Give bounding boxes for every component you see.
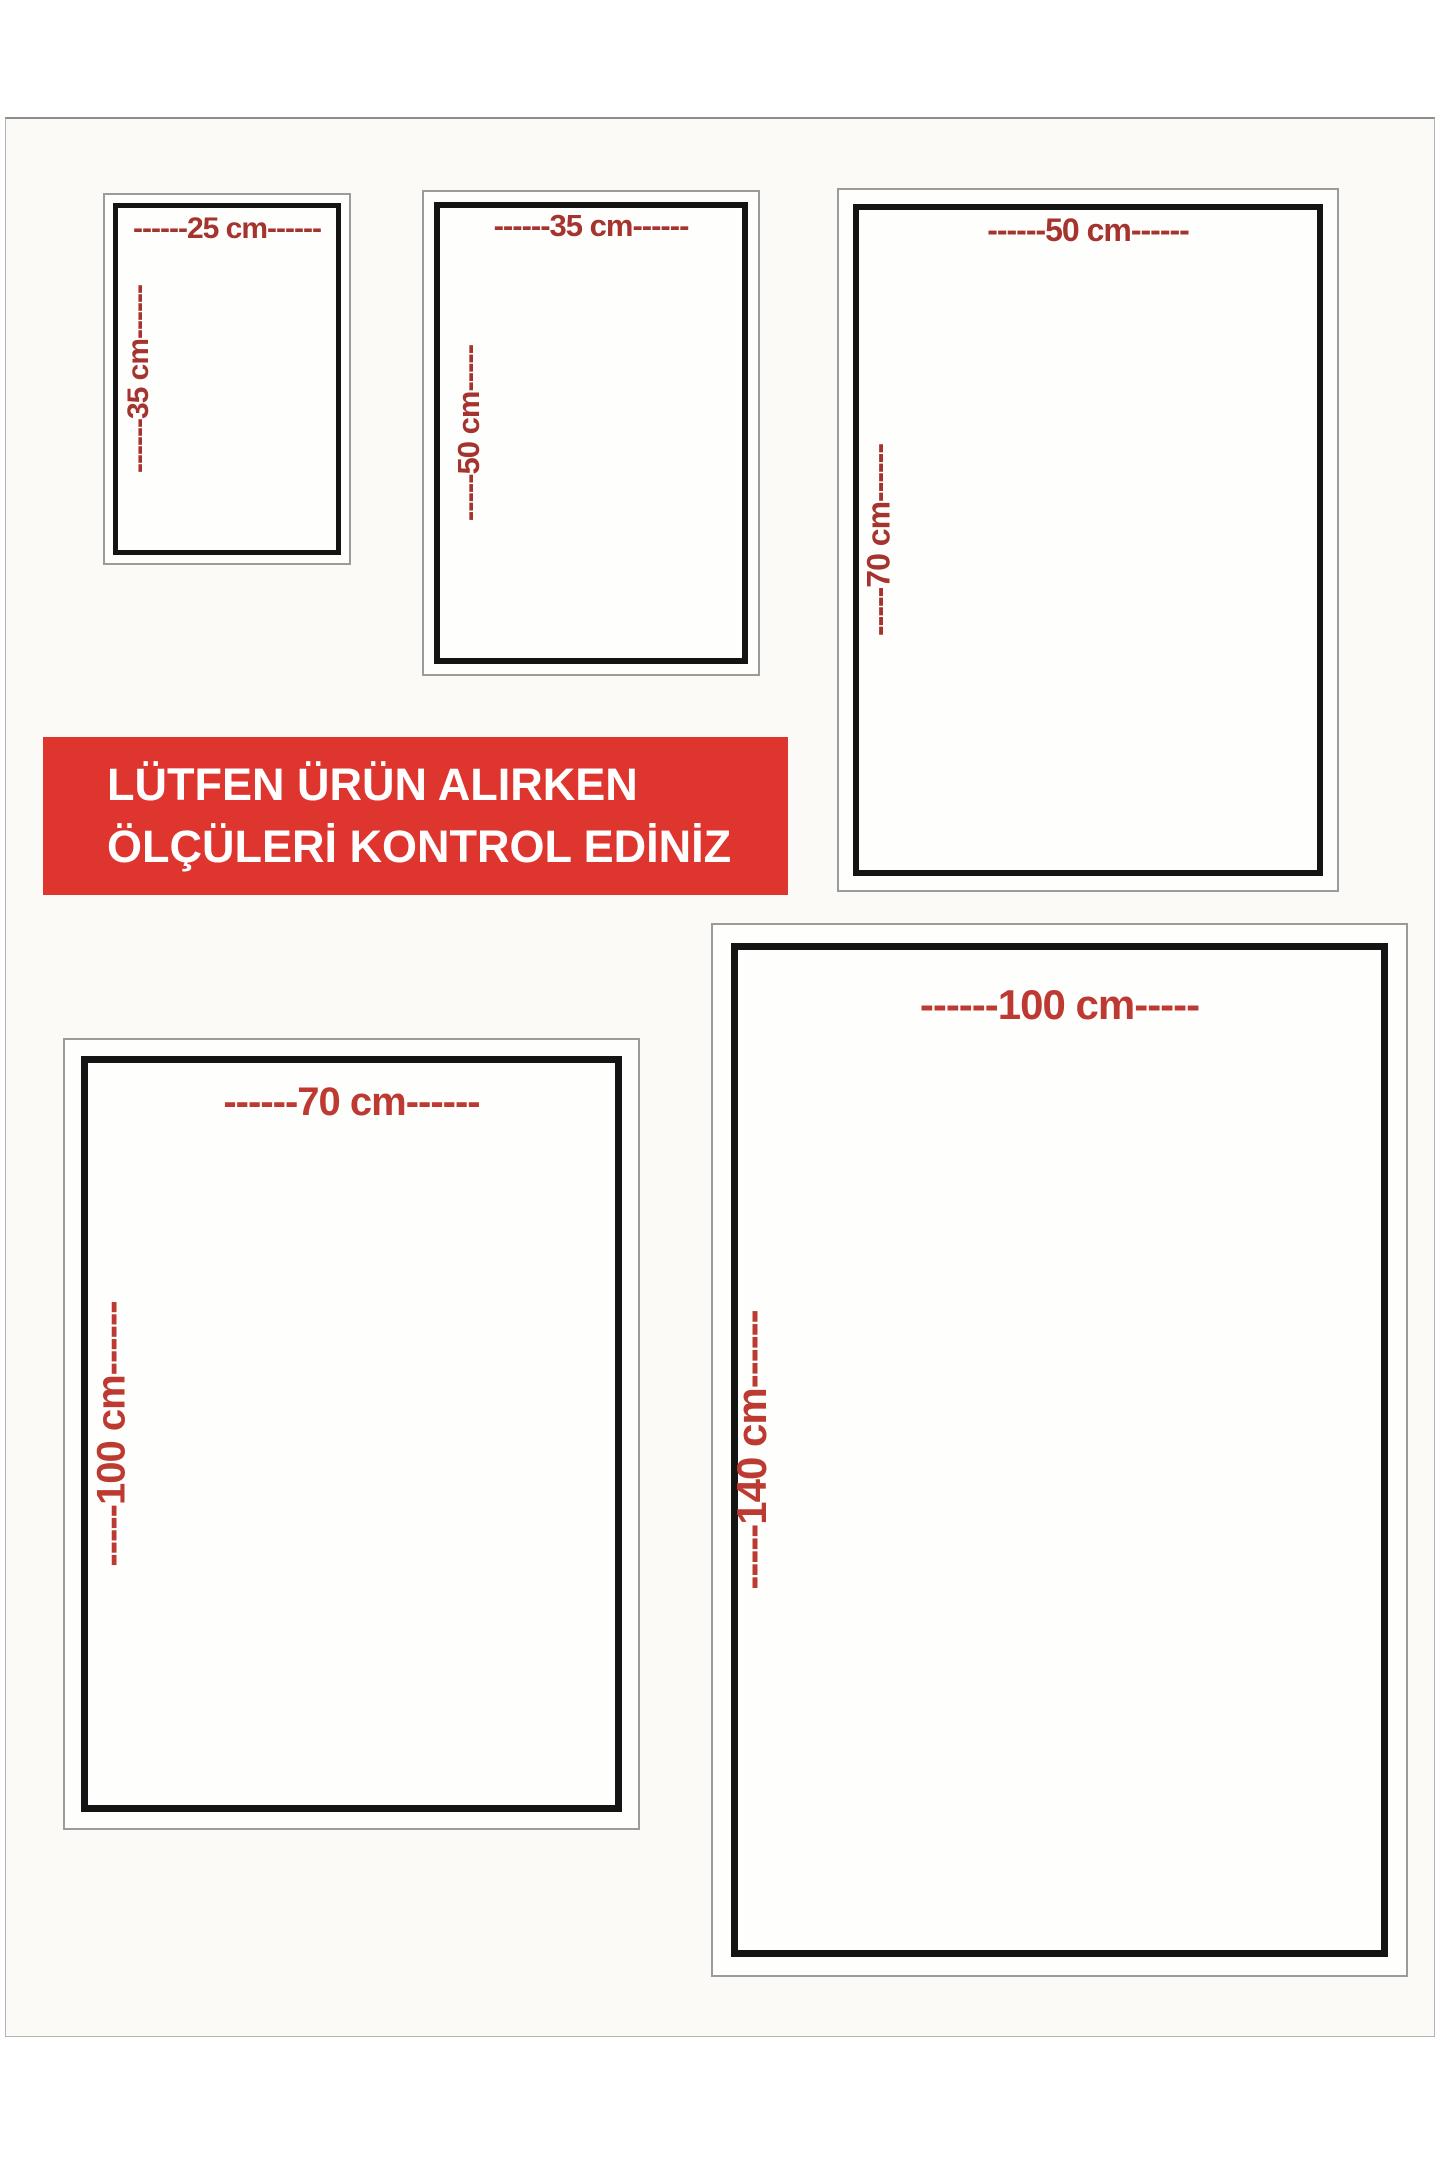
warning-banner: LÜTFEN ÜRÜN ALIRKEN ÖLÇÜLERİ KONTROL EDİ… bbox=[43, 737, 788, 895]
size-box-25x35: ------25 cm------ ------35 cm------ bbox=[103, 193, 351, 565]
warning-banner-line-2: ÖLÇÜLERİ KONTROL EDİNİZ bbox=[107, 816, 788, 878]
size-box-35x50: ------35 cm------ -----50 cm----- bbox=[422, 190, 760, 676]
size-box-70x100: ------70 cm------ -----100 cm------ bbox=[63, 1038, 640, 1830]
size-box-70x100-frame bbox=[81, 1056, 622, 1812]
height-dimension-label-35: ------35 cm------ bbox=[122, 285, 156, 473]
height-dimension-label-100: -----100 cm------ bbox=[90, 1301, 135, 1566]
width-dimension-label-35: ------35 cm------ bbox=[424, 208, 758, 244]
width-dimension-label-70: ------70 cm------ bbox=[65, 1080, 638, 1125]
size-box-100x140: ------100 cm----- -----140 cm------ bbox=[711, 923, 1408, 1977]
size-chart-canvas: ------25 cm------ ------35 cm------ ----… bbox=[0, 0, 1440, 2160]
height-dimension-label-140: -----140 cm------ bbox=[728, 1310, 776, 1589]
size-box-50x70-frame bbox=[853, 204, 1323, 876]
width-dimension-label-25: ------25 cm------ bbox=[105, 212, 349, 246]
size-box-100x140-frame bbox=[731, 943, 1388, 1957]
width-dimension-label-50: ------50 cm------ bbox=[839, 212, 1337, 249]
height-dimension-label-70: -----70 cm------ bbox=[861, 444, 898, 636]
warning-banner-line-1: LÜTFEN ÜRÜN ALIRKEN bbox=[107, 754, 788, 816]
size-box-50x70: ------50 cm------ -----70 cm------ bbox=[837, 188, 1339, 892]
width-dimension-label-100: ------100 cm----- bbox=[713, 981, 1406, 1029]
height-dimension-label-50: -----50 cm----- bbox=[451, 345, 487, 521]
